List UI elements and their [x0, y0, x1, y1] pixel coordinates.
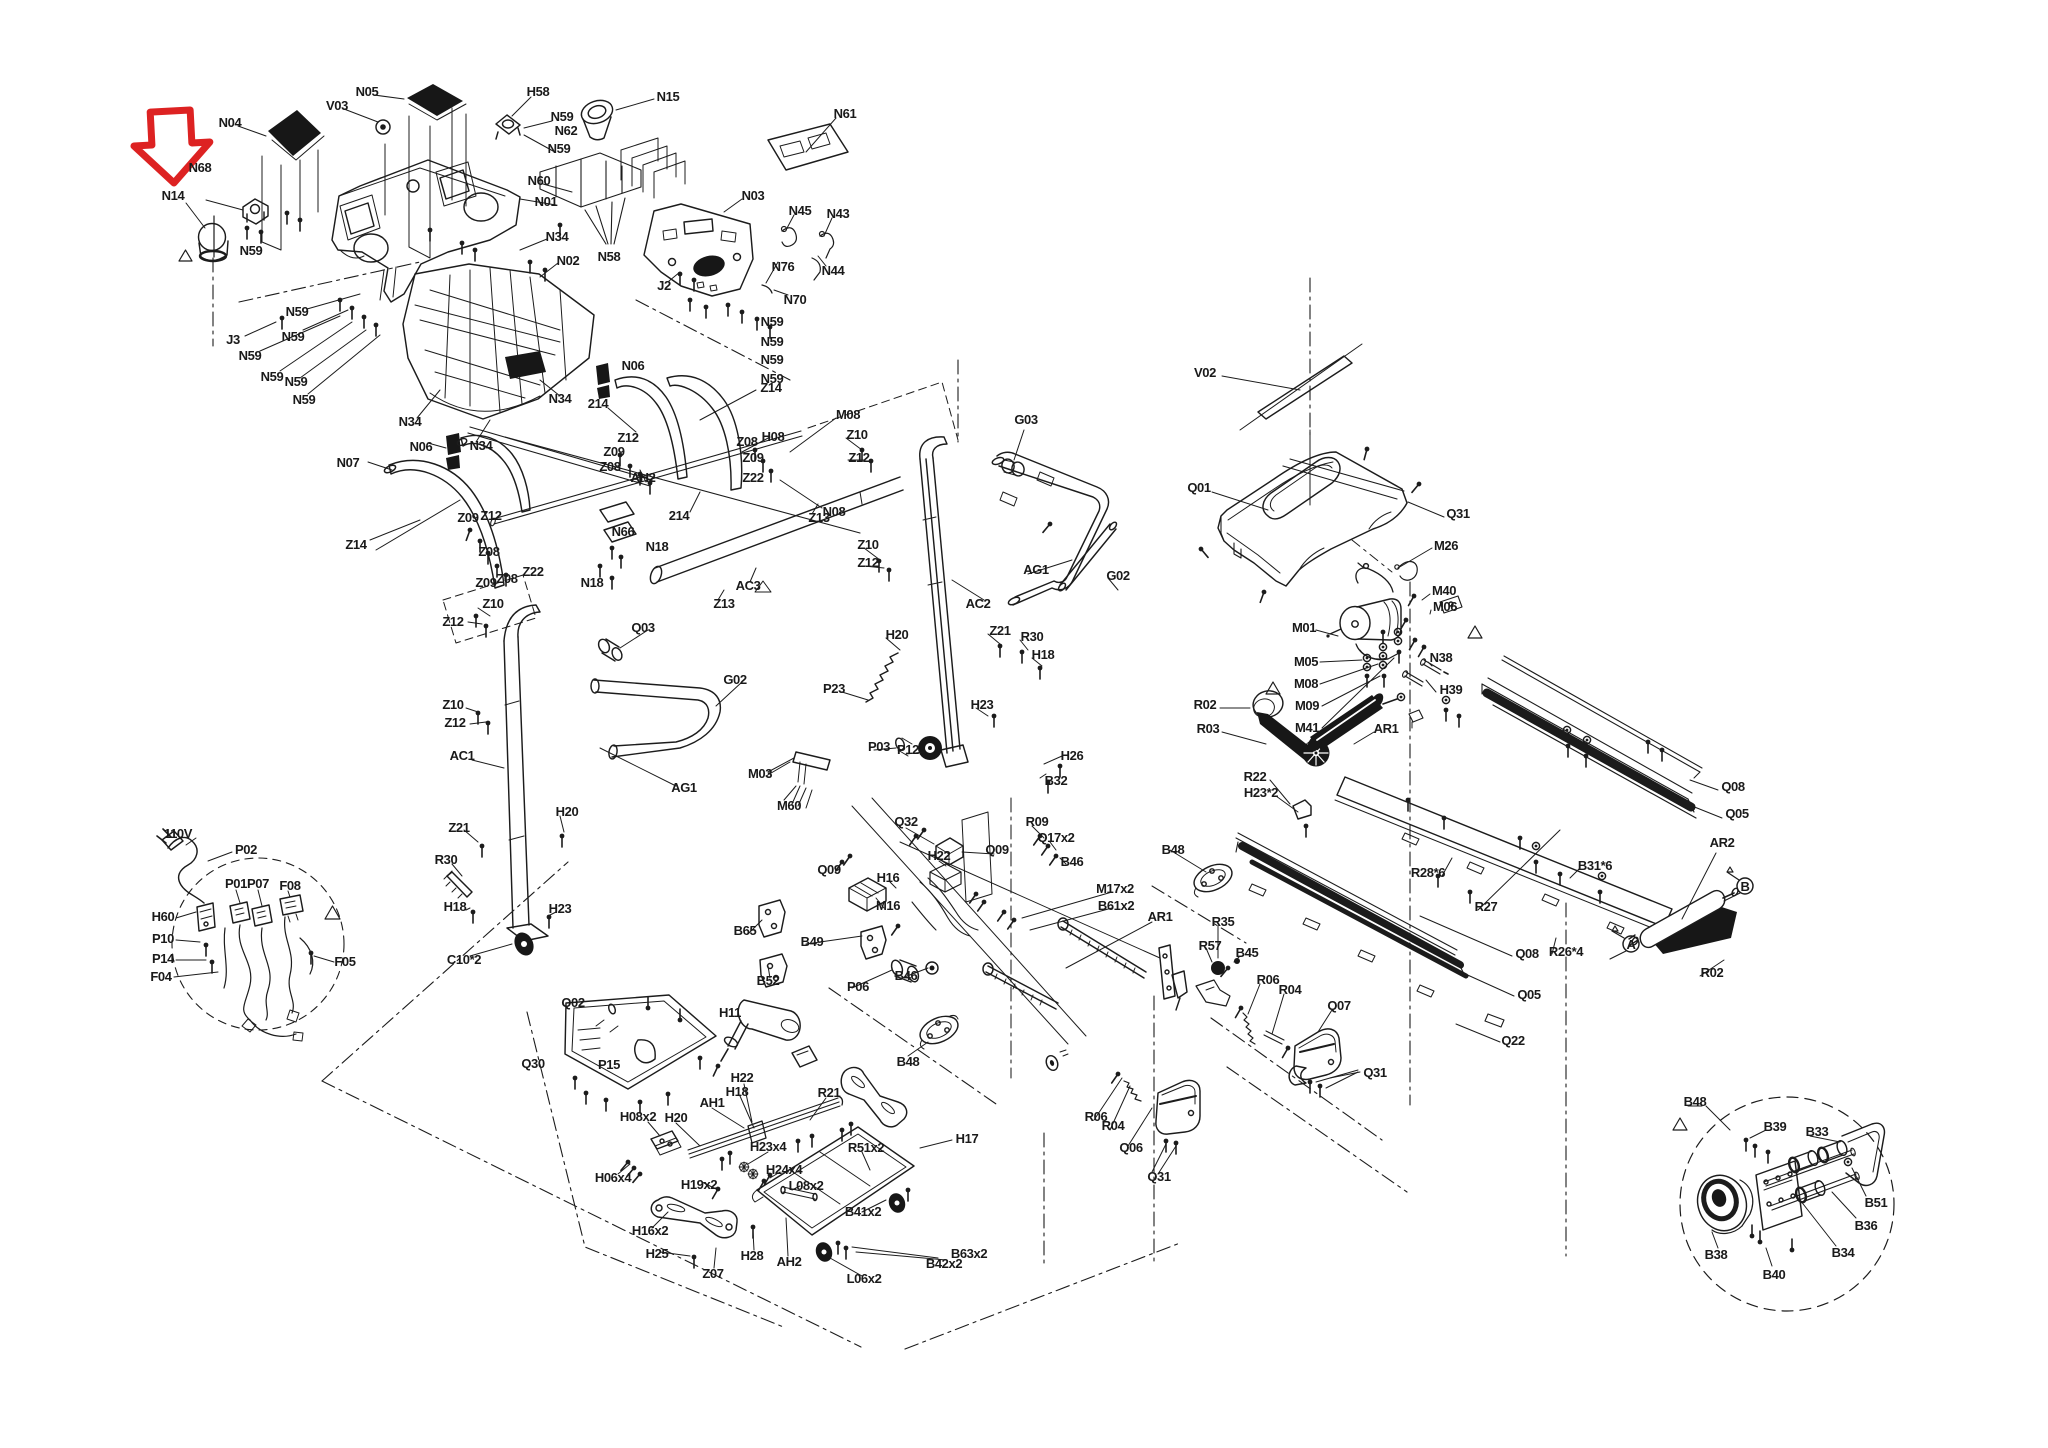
svg-text:B36: B36	[1855, 1218, 1878, 1233]
svg-text:N59: N59	[761, 314, 784, 329]
svg-text:F05: F05	[334, 954, 355, 969]
svg-text:M41: M41	[1295, 720, 1319, 735]
svg-text:B: B	[1741, 879, 1750, 894]
svg-text:M17x2: M17x2	[1096, 881, 1134, 896]
svg-text:N02: N02	[557, 253, 580, 268]
svg-text:J2: J2	[657, 278, 671, 293]
svg-text:Q17x2: Q17x2	[1037, 830, 1074, 845]
svg-text:B34: B34	[1832, 1245, 1856, 1260]
svg-text:Q06: Q06	[1119, 1140, 1143, 1155]
svg-text:AR2: AR2	[1710, 835, 1735, 850]
svg-text:N59: N59	[551, 109, 574, 124]
svg-text:Z22: Z22	[742, 470, 763, 485]
svg-text:R02: R02	[1701, 965, 1724, 980]
svg-text:H20: H20	[886, 627, 909, 642]
svg-text:N58: N58	[598, 249, 621, 264]
svg-text:H17: H17	[956, 1131, 979, 1146]
svg-text:B65: B65	[734, 923, 757, 938]
svg-text:Z08: Z08	[599, 459, 620, 474]
svg-text:AG1: AG1	[671, 780, 697, 795]
svg-text:N44: N44	[822, 263, 846, 278]
svg-text:Q22: Q22	[1501, 1033, 1525, 1048]
svg-text:N59: N59	[286, 304, 309, 319]
svg-text:N59: N59	[282, 329, 305, 344]
svg-text:B48: B48	[1162, 842, 1185, 857]
svg-text:N68: N68	[189, 160, 212, 175]
svg-text:P02: P02	[235, 842, 257, 857]
svg-text:214: 214	[669, 508, 691, 523]
svg-text:B32: B32	[1045, 773, 1068, 788]
svg-text:R03: R03	[1197, 721, 1220, 736]
svg-text:N59: N59	[761, 334, 784, 349]
svg-text:Q32: Q32	[894, 814, 918, 829]
svg-text:G02: G02	[723, 672, 747, 687]
svg-text:Z09: Z09	[475, 575, 496, 590]
svg-text:G02: G02	[1106, 568, 1130, 583]
svg-text:B49: B49	[801, 934, 824, 949]
svg-text:H58: H58	[527, 84, 550, 99]
svg-text:H23: H23	[549, 901, 572, 916]
svg-text:Q09: Q09	[817, 862, 841, 877]
svg-text:R21: R21	[818, 1085, 841, 1100]
svg-text:Q08: Q08	[1721, 779, 1745, 794]
svg-text:M60: M60	[777, 798, 801, 813]
svg-text:L06x2: L06x2	[847, 1271, 882, 1286]
svg-text:V02: V02	[1194, 365, 1216, 380]
svg-text:H23x4: H23x4	[750, 1139, 787, 1154]
svg-text:Z10: Z10	[442, 697, 463, 712]
svg-text:Q05: Q05	[1517, 987, 1541, 1002]
svg-text:Z10: Z10	[857, 537, 878, 552]
svg-text:R22: R22	[1244, 769, 1267, 784]
svg-text:B39: B39	[1764, 1119, 1787, 1134]
svg-text:R02: R02	[1194, 697, 1217, 712]
svg-text:N38: N38	[1430, 650, 1453, 665]
svg-text:N59: N59	[293, 392, 316, 407]
svg-text:Z08: Z08	[736, 434, 757, 449]
svg-text:H20: H20	[556, 804, 579, 819]
svg-text:L08x2: L08x2	[789, 1178, 824, 1193]
svg-text:Z12: Z12	[848, 450, 869, 465]
svg-text:AR1: AR1	[1374, 721, 1399, 736]
svg-text:Z12: Z12	[442, 614, 463, 629]
svg-text:Z08: Z08	[478, 544, 499, 559]
svg-text:R04: R04	[1102, 1118, 1126, 1133]
svg-text:110V: 110V	[164, 826, 193, 841]
svg-text:B41x2: B41x2	[845, 1204, 881, 1219]
svg-text:H18: H18	[444, 899, 467, 914]
svg-text:Z07: Z07	[702, 1266, 723, 1281]
svg-text:P06: P06	[847, 979, 869, 994]
svg-text:N61: N61	[834, 106, 857, 121]
svg-text:N06: N06	[410, 439, 433, 454]
svg-text:AH1: AH1	[700, 1095, 725, 1110]
svg-text:N59: N59	[261, 369, 284, 384]
svg-text:B31*6: B31*6	[1578, 858, 1612, 873]
svg-text:N34: N34	[546, 229, 570, 244]
svg-text:P12: P12	[897, 742, 919, 757]
svg-text:Z13: Z13	[808, 510, 829, 525]
svg-text:Z13: Z13	[713, 596, 734, 611]
svg-text:Z22: Z22	[522, 564, 543, 579]
svg-text:P15: P15	[598, 1057, 620, 1072]
svg-text:AC1: AC1	[450, 748, 475, 763]
svg-text:Q02: Q02	[561, 995, 585, 1010]
svg-text:N59: N59	[761, 352, 784, 367]
svg-text:H08x2: H08x2	[620, 1109, 656, 1124]
svg-text:H16: H16	[877, 870, 900, 885]
svg-text:H11: H11	[719, 1005, 741, 1020]
svg-text:V03: V03	[326, 98, 348, 113]
svg-text:M16: M16	[876, 898, 900, 913]
svg-text:H08: H08	[762, 429, 785, 444]
svg-text:N70: N70	[784, 292, 807, 307]
svg-text:H24x4: H24x4	[766, 1162, 803, 1177]
svg-text:Z12: Z12	[480, 508, 501, 523]
svg-text:A: A	[1627, 937, 1637, 952]
svg-text:N01: N01	[535, 194, 558, 209]
svg-text:M40: M40	[1432, 583, 1456, 598]
svg-text:Z09: Z09	[603, 444, 624, 459]
svg-text:AC2: AC2	[966, 596, 991, 611]
svg-text:N59: N59	[285, 374, 308, 389]
svg-text:F08: F08	[279, 878, 300, 893]
svg-text:B48: B48	[1684, 1094, 1707, 1109]
svg-text:B52: B52	[757, 973, 780, 988]
svg-text:AR1: AR1	[1148, 909, 1173, 924]
svg-text:B61x2: B61x2	[1098, 898, 1134, 913]
svg-text:R09: R09	[1026, 814, 1049, 829]
svg-text:Z14: Z14	[760, 380, 782, 395]
svg-text:P07: P07	[247, 876, 269, 891]
svg-text:R26*4: R26*4	[1549, 944, 1584, 959]
svg-text:Z12: Z12	[617, 430, 638, 445]
svg-text:Q07: Q07	[1327, 998, 1351, 1013]
svg-text:H39: H39	[1440, 682, 1463, 697]
svg-text:P03: P03	[868, 739, 890, 754]
svg-text:C10*2: C10*2	[447, 952, 481, 967]
svg-text:Z21: Z21	[448, 820, 469, 835]
svg-text:Q30: Q30	[521, 1056, 545, 1071]
svg-text:R30: R30	[435, 852, 458, 867]
svg-text:N18: N18	[581, 575, 604, 590]
svg-text:B46: B46	[895, 968, 918, 983]
svg-text:H18: H18	[1032, 647, 1055, 662]
svg-text:M08: M08	[1294, 676, 1318, 691]
svg-text:B33: B33	[1806, 1124, 1829, 1139]
svg-text:Q05: Q05	[1725, 806, 1749, 821]
svg-text:M06: M06	[1433, 599, 1457, 614]
svg-text:R35: R35	[1212, 914, 1235, 929]
svg-text:Z12: Z12	[444, 715, 465, 730]
svg-text:Z12: Z12	[857, 555, 878, 570]
svg-text:Z10: Z10	[846, 427, 867, 442]
svg-text:M09: M09	[1295, 698, 1319, 713]
svg-text:P01: P01	[225, 876, 247, 891]
svg-text:H20: H20	[665, 1110, 688, 1125]
svg-text:N43: N43	[827, 206, 850, 221]
svg-text:R30: R30	[1021, 629, 1044, 644]
svg-text:H60: H60	[152, 909, 175, 924]
svg-text:N05: N05	[356, 84, 379, 99]
svg-text:N18: N18	[646, 539, 669, 554]
svg-text:H06x4: H06x4	[595, 1170, 632, 1185]
svg-text:R28*6: R28*6	[1411, 865, 1445, 880]
svg-text:G03: G03	[1014, 412, 1038, 427]
svg-text:B46: B46	[1061, 854, 1084, 869]
svg-text:Q31: Q31	[1147, 1169, 1171, 1184]
svg-text:R51x2: R51x2	[848, 1140, 884, 1155]
svg-text:Q03: Q03	[631, 620, 655, 635]
svg-text:N34: N34	[549, 391, 573, 406]
svg-text:214: 214	[588, 396, 610, 411]
svg-text:M03: M03	[748, 766, 772, 781]
svg-text:N66: N66	[612, 524, 635, 539]
svg-text:AH2: AH2	[631, 470, 656, 485]
svg-text:N14: N14	[162, 188, 186, 203]
svg-text:Q09: Q09	[985, 842, 1009, 857]
svg-text:P14: P14	[152, 951, 175, 966]
svg-text:AG1: AG1	[1023, 562, 1049, 577]
svg-text:H22: H22	[928, 848, 951, 863]
svg-text:Z10: Z10	[482, 596, 503, 611]
svg-text:N34: N34	[399, 414, 423, 429]
svg-text:Q31: Q31	[1446, 506, 1470, 521]
svg-text:N06: N06	[622, 358, 645, 373]
svg-text:N07: N07	[337, 455, 360, 470]
svg-text:N76: N76	[772, 259, 795, 274]
svg-text:Q08: Q08	[1515, 946, 1539, 961]
svg-text:P23: P23	[823, 681, 845, 696]
svg-text:M26: M26	[1434, 538, 1458, 553]
svg-text:R06: R06	[1257, 972, 1280, 987]
svg-text:H28: H28	[741, 1248, 764, 1263]
svg-text:J3: J3	[226, 332, 240, 347]
svg-text:N03: N03	[742, 188, 765, 203]
svg-text:H19x2: H19x2	[681, 1177, 717, 1192]
svg-text:R04: R04	[1279, 982, 1303, 997]
svg-text:Z09: Z09	[457, 510, 478, 525]
svg-text:B51: B51	[1865, 1195, 1888, 1210]
svg-text:R57: R57	[1199, 938, 1222, 953]
svg-text:M08: M08	[836, 407, 860, 422]
svg-text:N45: N45	[789, 203, 812, 218]
svg-text:N59: N59	[240, 243, 263, 258]
svg-text:H18: H18	[726, 1084, 749, 1099]
svg-text:Z21: Z21	[989, 623, 1010, 638]
svg-text:H16x2: H16x2	[632, 1223, 668, 1238]
svg-text:N04: N04	[219, 115, 243, 130]
svg-text:H23*2: H23*2	[1244, 785, 1278, 800]
svg-text:B38: B38	[1705, 1247, 1728, 1262]
svg-text:P10: P10	[152, 931, 174, 946]
svg-text:M05: M05	[1294, 654, 1318, 669]
svg-text:H23: H23	[971, 697, 994, 712]
svg-text:N62: N62	[555, 123, 578, 138]
svg-text:Z08: Z08	[496, 571, 517, 586]
svg-text:N60: N60	[528, 173, 551, 188]
svg-text:R27: R27	[1475, 899, 1498, 914]
svg-text:Z14: Z14	[345, 537, 367, 552]
svg-text:H26: H26	[1061, 748, 1084, 763]
svg-text:H25: H25	[646, 1246, 669, 1261]
svg-text:B40: B40	[1763, 1267, 1786, 1282]
svg-text:Z09: Z09	[742, 450, 763, 465]
svg-text:Q01: Q01	[1187, 480, 1211, 495]
svg-text:B45: B45	[1236, 945, 1259, 960]
svg-text:AC3: AC3	[736, 578, 761, 593]
svg-text:Q31: Q31	[1363, 1065, 1387, 1080]
svg-text:N59: N59	[548, 141, 571, 156]
svg-text:AH2: AH2	[777, 1254, 802, 1269]
svg-text:H22: H22	[731, 1070, 754, 1085]
svg-text:B42x2: B42x2	[926, 1256, 962, 1271]
svg-text:F04: F04	[150, 969, 172, 984]
svg-text:N15: N15	[657, 89, 680, 104]
svg-text:M01: M01	[1292, 620, 1316, 635]
svg-text:N59: N59	[239, 348, 262, 363]
